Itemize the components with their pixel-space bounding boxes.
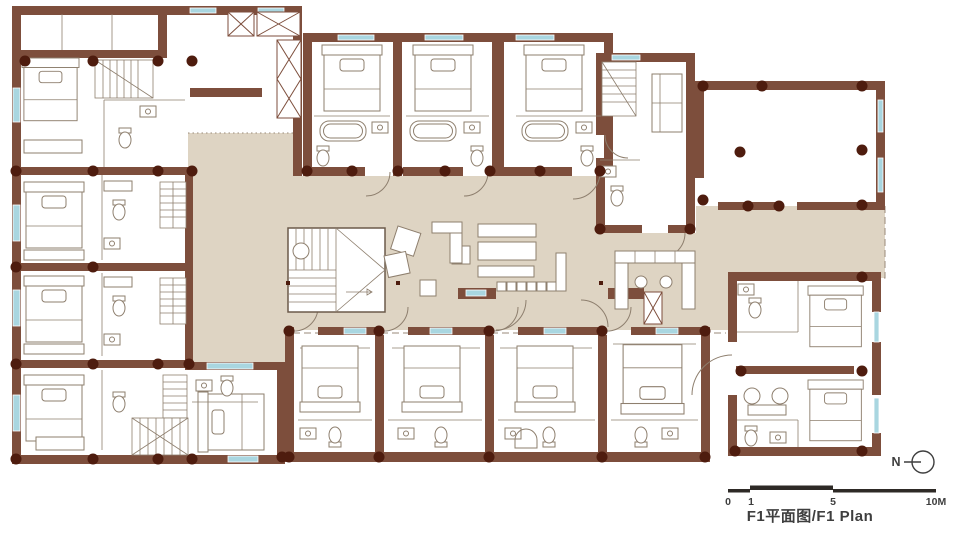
bathtub	[320, 121, 366, 141]
sofa	[36, 437, 84, 450]
vanity	[104, 181, 132, 191]
stair	[95, 60, 153, 98]
toilet	[113, 392, 125, 412]
toilet	[435, 427, 447, 447]
sink	[398, 428, 414, 439]
bench	[478, 266, 534, 277]
toilet	[611, 186, 623, 206]
bathtub	[410, 121, 456, 141]
floor-plan-page: N 0 1 5 10M F1平面图/F1 Plan	[0, 0, 960, 535]
toilet	[317, 146, 329, 166]
bed	[24, 375, 84, 441]
scale-bar: 0 1 5 10M	[725, 486, 946, 509]
armchair	[420, 280, 436, 296]
bed	[198, 392, 264, 452]
toilet	[119, 128, 131, 148]
toilet	[749, 298, 761, 318]
sink	[140, 106, 156, 117]
sink	[738, 284, 754, 295]
bench	[556, 253, 566, 291]
bed	[808, 286, 863, 347]
vanity	[104, 277, 132, 287]
bed	[402, 346, 462, 412]
bench	[478, 224, 536, 237]
chair	[744, 388, 760, 404]
stool	[635, 276, 647, 288]
closet-shafts	[228, 12, 301, 118]
scale-label-0: 0	[725, 496, 731, 508]
sink	[196, 380, 212, 391]
bed	[515, 346, 575, 412]
north-indicator: N	[891, 451, 934, 473]
sofa	[478, 242, 536, 260]
toilet	[635, 427, 647, 447]
bathtub	[522, 121, 568, 141]
chair	[772, 388, 788, 404]
toilet	[471, 146, 483, 166]
bench	[24, 250, 84, 260]
scale-label-1: 1	[748, 496, 754, 508]
sink	[770, 432, 786, 443]
toilet	[113, 296, 125, 316]
north-label: N	[891, 455, 900, 469]
bed	[300, 346, 360, 412]
toilet	[543, 427, 555, 447]
bed	[322, 45, 382, 111]
sink	[576, 122, 592, 133]
sink	[372, 122, 388, 133]
stool	[660, 276, 672, 288]
sink	[662, 428, 678, 439]
bed	[24, 182, 84, 248]
sink	[104, 238, 120, 249]
sink	[300, 428, 316, 439]
bed	[413, 45, 473, 111]
table	[450, 233, 462, 263]
bed	[24, 276, 84, 342]
toilet	[581, 146, 593, 166]
scale-label-5: 5	[830, 496, 836, 508]
stair	[602, 62, 636, 116]
bed	[808, 380, 863, 441]
toilet	[113, 200, 125, 220]
sofa	[24, 140, 82, 153]
table	[432, 222, 462, 233]
bench	[24, 344, 84, 354]
bottom-rooms	[298, 344, 698, 448]
toilet	[329, 427, 341, 447]
right-suite	[737, 281, 863, 447]
stair	[132, 182, 188, 455]
bed	[524, 45, 584, 111]
sink	[505, 428, 521, 439]
grand-stair	[288, 228, 385, 312]
bed	[621, 345, 684, 414]
bed	[22, 58, 79, 121]
toilet	[745, 426, 757, 446]
sink	[464, 122, 480, 133]
plan-title: F1平面图/F1 Plan	[747, 508, 874, 525]
toilet	[221, 376, 233, 396]
sink	[104, 334, 120, 345]
seat-row	[497, 282, 556, 291]
floor-plan-drawing: N 0 1 5 10M F1平面图/F1 Plan	[0, 0, 960, 535]
table	[748, 405, 786, 415]
scale-label-10m: 10M	[926, 496, 947, 508]
